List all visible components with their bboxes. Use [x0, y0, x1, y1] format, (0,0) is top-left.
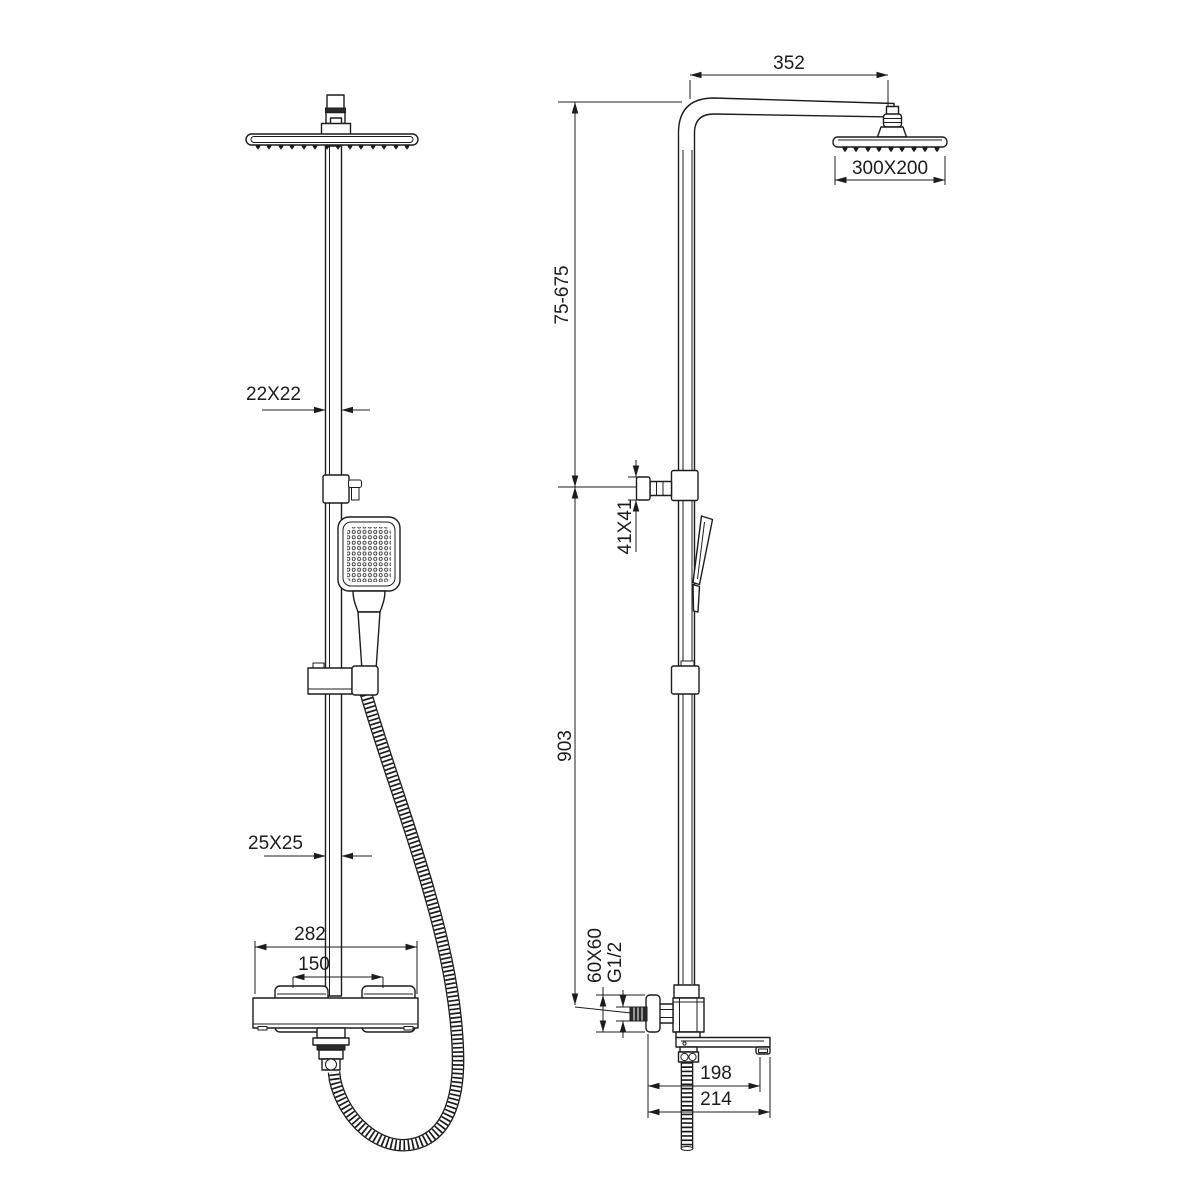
dim-903-label: 903 — [555, 730, 576, 762]
dim-198-label: 198 — [700, 1063, 732, 1084]
rain-shower-head-front — [246, 134, 418, 150]
dim-300x200: 300X200 — [835, 156, 945, 185]
valve-outlet-front — [313, 1028, 349, 1070]
hex-nut-side — [659, 1004, 673, 1023]
dim-282-label: 282 — [294, 924, 326, 945]
dim-75-675: 75-675 — [552, 102, 682, 487]
spray-face-front — [347, 527, 391, 582]
slider-knob-side — [637, 477, 651, 500]
rail-and-arm-side — [679, 98, 895, 986]
hand-shower-front — [338, 517, 400, 670]
dim-352-label: 352 — [773, 53, 805, 74]
dim-300x200-label: 300X200 — [852, 158, 928, 179]
valve-body-side — [673, 998, 704, 1032]
dim-150: 150 — [293, 954, 383, 988]
dim-150-label: 150 — [298, 954, 330, 975]
rain-shower-head-side — [833, 137, 947, 152]
shower-hose-front — [334, 690, 458, 1145]
hand-shower-side — [693, 516, 713, 612]
technical-drawing-page: 22X22 25X25 282 150 — [0, 0, 1200, 1200]
dim-g12: G1/2 — [605, 942, 630, 1038]
dim-41x41: 41X41 — [615, 460, 637, 554]
dim-22x22: 22X22 — [246, 384, 370, 410]
wall-flange-side — [646, 995, 660, 1032]
slider-knob-front — [349, 480, 362, 488]
dim-25x25-label: 25X25 — [248, 833, 303, 854]
mixer-valve-front — [253, 986, 418, 1032]
dim-282: 282 — [255, 924, 417, 994]
shower-hose-side — [681, 1062, 693, 1151]
dim-60x60-label: 60X60 — [585, 928, 606, 983]
g12-thread-side — [630, 1007, 647, 1021]
rail-connector-side — [672, 661, 700, 694]
rail-joint-side — [674, 985, 699, 998]
hand-shower-handle — [358, 612, 380, 670]
slider-bracket-front — [323, 475, 362, 503]
mixer-valve-side — [630, 985, 704, 1032]
dim-25x25: 25X25 — [248, 833, 372, 856]
dim-22x22-label: 22X22 — [246, 384, 301, 405]
shower-system-technical-drawing: 22X22 25X25 282 150 — [0, 0, 1200, 1200]
hand-shower-neck — [353, 591, 385, 612]
hose-connector-side — [679, 1047, 699, 1062]
side-view: 352 300X200 75-675 903 41X41 — [552, 53, 947, 1151]
slider-bracket-side — [637, 471, 699, 501]
rain-head-connector-front — [322, 95, 351, 136]
dim-41x41-label: 41X41 — [615, 500, 636, 555]
dim-75-675-label: 75-675 — [552, 265, 573, 324]
spray-nozzles-side — [842, 147, 940, 152]
front-view: 22X22 25X25 282 150 — [246, 95, 458, 1145]
dim-214-label: 214 — [700, 1089, 732, 1110]
hose-holder-front — [308, 663, 378, 695]
slider-knob-stem-side — [650, 482, 672, 496]
dim-g12-label: G1/2 — [605, 942, 626, 983]
